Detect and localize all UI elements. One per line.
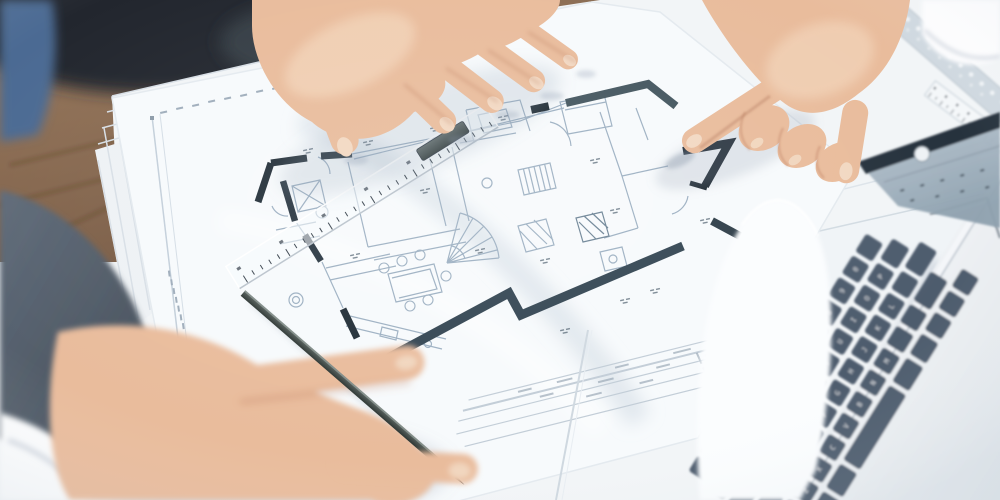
light-overlay (0, 0, 1000, 500)
photo-architects-blueprint: ZXCVBNMASDFGHJKLQWERTYUIOP1234567890 (0, 0, 1000, 500)
photo-canvas: ZXCVBNMASDFGHJKLQWERTYUIOP1234567890 (0, 0, 1000, 500)
